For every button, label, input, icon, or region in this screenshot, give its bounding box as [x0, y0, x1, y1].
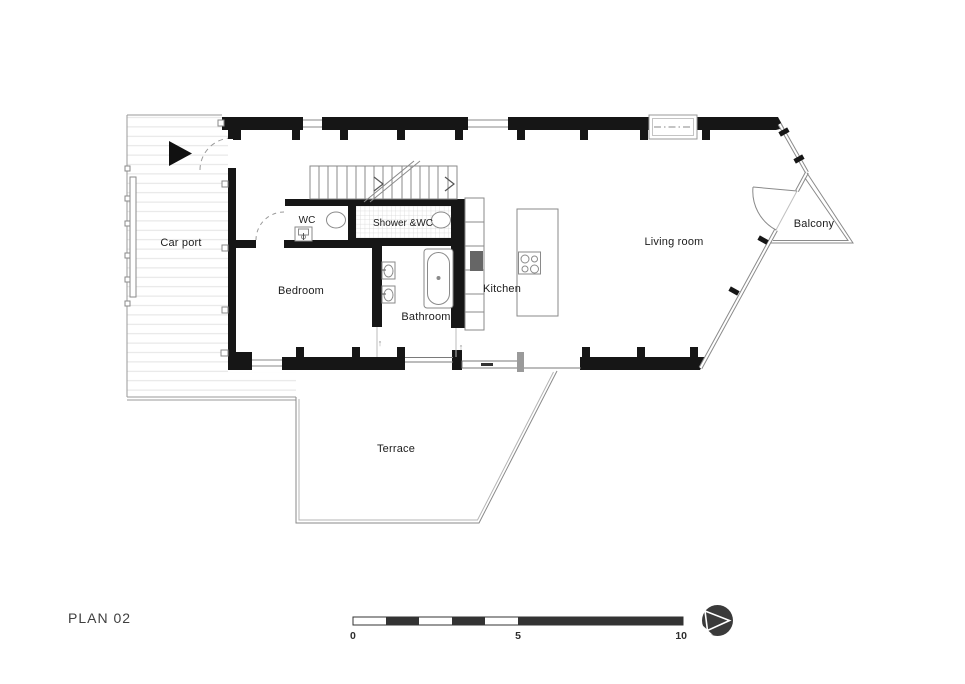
- south-wall: [252, 347, 707, 372]
- east-facade: [701, 124, 808, 368]
- scale-bar: 0 5 10: [350, 617, 687, 642]
- room-label-bathroom: Bathroom: [401, 311, 450, 323]
- roof-window: [649, 115, 697, 139]
- scale-tick-5: 5: [515, 630, 521, 642]
- west-wall: [228, 130, 252, 370]
- room-label-car-port: Car port: [160, 237, 201, 249]
- bathroom-basin-icons: [382, 262, 395, 303]
- facade-mullions: [728, 127, 804, 295]
- terrace-outline-outer: [296, 371, 557, 523]
- plan-title: PLAN 02: [68, 610, 131, 626]
- balcony-area: [770, 173, 853, 243]
- wc-basin-icon: [327, 212, 346, 228]
- floor-plan-drawing: Car port Bedroom WC Shower &WC Bathroom …: [0, 0, 965, 684]
- room-label-shower-wc: Shower &WC: [373, 218, 433, 229]
- scale-tick-10: 10: [675, 630, 687, 642]
- carport-deck-hatch-lower: [228, 372, 296, 397]
- kitchen-island: [517, 209, 558, 316]
- bathroom-threshold-lines: [377, 327, 456, 357]
- room-label-terrace: Terrace: [377, 443, 415, 455]
- room-label-bedroom: Bedroom: [278, 285, 324, 297]
- floor-plan-page: Car port Bedroom WC Shower &WC Bathroom …: [0, 0, 965, 684]
- door-arrow-right: ↑: [459, 342, 464, 352]
- room-label-kitchen: Kitchen: [483, 283, 521, 295]
- balcony-door: [753, 187, 797, 230]
- carport-screen-wall: [130, 177, 136, 297]
- south-window: [252, 360, 282, 366]
- carport-area: [125, 115, 296, 400]
- sliding-door-handle: [481, 363, 493, 366]
- stairs: [310, 161, 457, 202]
- sliding-door-track: [405, 358, 453, 363]
- wc-door-swing: [256, 212, 284, 240]
- terrace-area: [296, 371, 557, 523]
- door-arrow-left: ↑: [378, 338, 383, 348]
- terrace-outline-inner: [299, 372, 554, 520]
- oven-icon: [470, 251, 483, 271]
- toilet-icon: [295, 227, 312, 241]
- scale-tick-0: 0: [350, 630, 356, 642]
- south-mullion: [517, 352, 524, 372]
- bathtub-icon: [424, 249, 453, 308]
- room-label-balcony: Balcony: [794, 218, 835, 230]
- kitchen-counter: [465, 198, 484, 330]
- room-label-living-room: Living room: [644, 236, 703, 248]
- shower-basin-icon: [432, 212, 451, 228]
- studio-logo-icon: [701, 605, 734, 636]
- room-label-wc: WC: [299, 215, 316, 226]
